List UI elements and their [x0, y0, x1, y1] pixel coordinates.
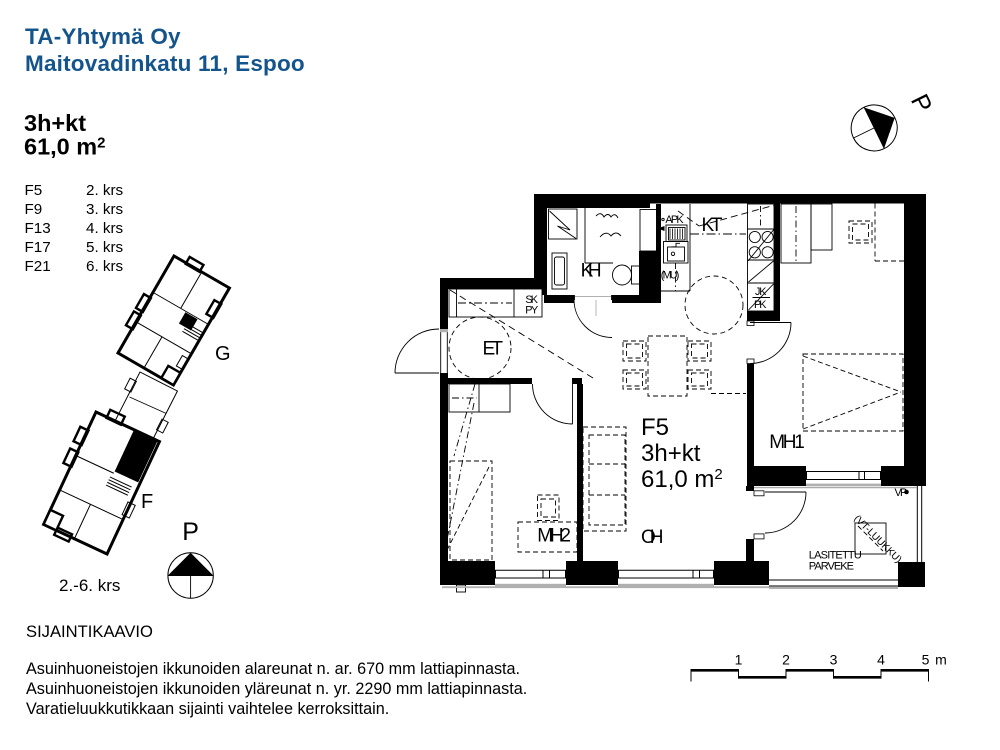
svg-text:61,0 m2: 61,0 m2 — [24, 134, 106, 160]
svg-text:Varatieluukkutikkaan sijainti: Varatieluukkutikkaan sijainti vaihtelee … — [26, 700, 389, 718]
svg-text:Asuinhuoneistojen ikkunoiden y: Asuinhuoneistojen ikkunoiden yläreunat n… — [26, 680, 527, 698]
svg-text:3h+kt: 3h+kt — [24, 110, 86, 136]
svg-text:4: 4 — [877, 652, 885, 668]
svg-text:TA-Yhtymä Oy: TA-Yhtymä Oy — [25, 24, 181, 49]
svg-text:G: G — [215, 343, 231, 365]
svg-text:4. krs: 4. krs — [86, 220, 124, 237]
svg-text:KT: KT — [702, 215, 723, 236]
svg-text:PK: PK — [754, 299, 767, 311]
svg-text:6. krs: 6. krs — [86, 258, 124, 275]
svg-text:P: P — [182, 518, 199, 546]
svg-text:1: 1 — [735, 652, 743, 668]
svg-text:5. krs: 5. krs — [86, 239, 124, 256]
svg-text:F17: F17 — [25, 239, 51, 256]
svg-text:SIJAINTIKAAVIO: SIJAINTIKAAVIO — [26, 622, 153, 641]
svg-text:F5: F5 — [25, 182, 43, 199]
svg-text:3. krs: 3. krs — [86, 201, 124, 218]
svg-text:F9: F9 — [25, 201, 43, 218]
svg-text:PY: PY — [525, 304, 538, 316]
svg-text:(MU): (MU) — [661, 270, 680, 282]
svg-text:Maitovadinkatu 11, Espoo: Maitovadinkatu 11, Espoo — [25, 51, 305, 76]
svg-text:OH: OH — [641, 527, 664, 548]
svg-text:5: 5 — [922, 652, 930, 668]
svg-text:F21: F21 — [25, 258, 51, 275]
svg-text:61,0 m2: 61,0 m2 — [641, 466, 723, 493]
svg-text:MH1: MH1 — [769, 432, 805, 453]
svg-text:2: 2 — [782, 652, 790, 668]
svg-text:3h+kt: 3h+kt — [641, 440, 701, 467]
svg-text:F5: F5 — [641, 414, 669, 441]
svg-text:2.-6. krs: 2.-6. krs — [59, 576, 120, 595]
svg-text:PARVEKE: PARVEKE — [809, 561, 854, 573]
svg-text:APK: APK — [665, 214, 684, 226]
svg-text:MH2: MH2 — [537, 525, 571, 546]
svg-text:2. krs: 2. krs — [86, 182, 124, 199]
svg-text:m: m — [935, 652, 947, 668]
svg-text:3: 3 — [830, 652, 838, 668]
svg-text:F: F — [141, 491, 153, 513]
svg-text:F13: F13 — [25, 220, 51, 237]
svg-text:ET: ET — [483, 338, 504, 359]
svg-text:Asuinhuoneistojen ikkunoiden a: Asuinhuoneistojen ikkunoiden alareunat n… — [26, 660, 520, 678]
